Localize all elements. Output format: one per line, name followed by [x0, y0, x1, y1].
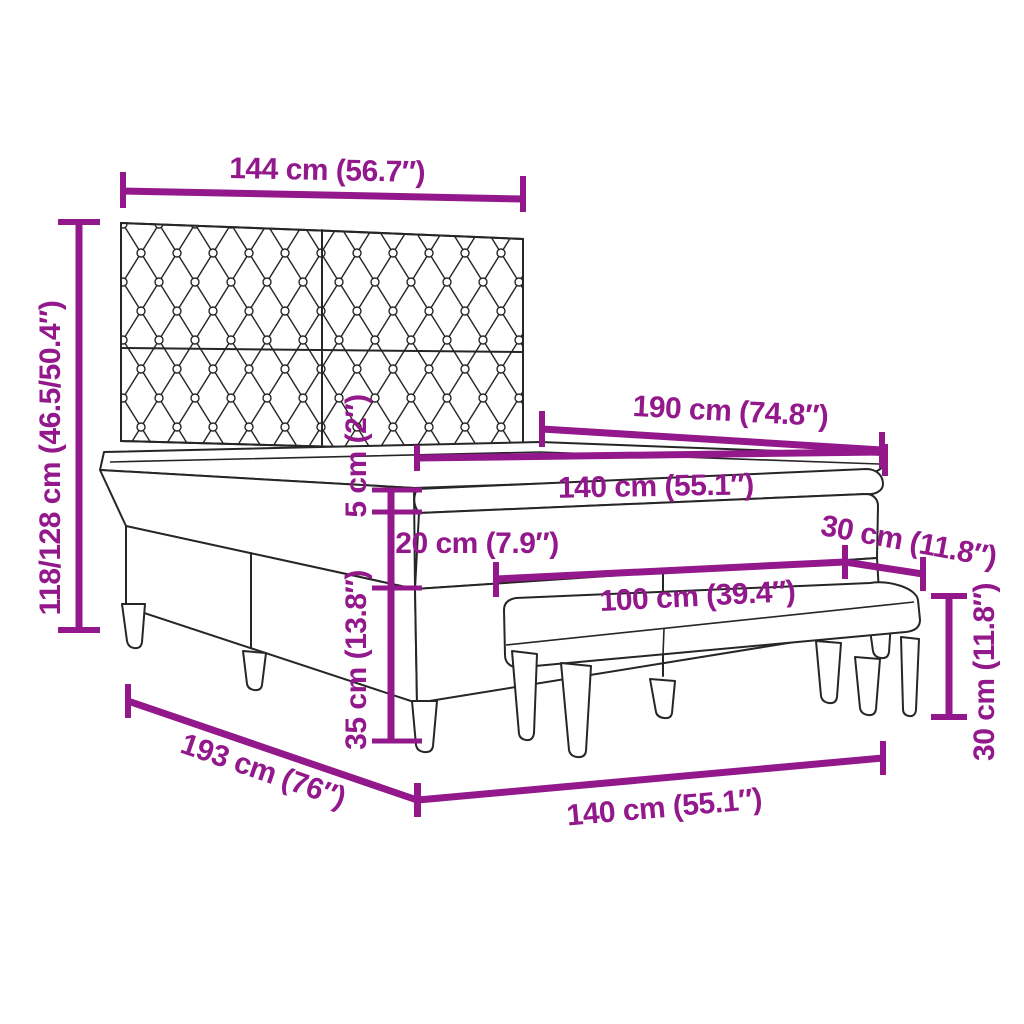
dim-bed-width: 140 cm (55.1″) — [418, 741, 883, 833]
dimension-diagram: 144 cm (56.7″) 118/128 cm (46.5/50.4″) 1… — [0, 0, 1024, 1024]
dim-label-bed-width: 140 cm (55.1″) — [565, 783, 763, 833]
bench-back-right-leg — [901, 637, 919, 716]
dim-frame-length: 193 cm (76″) — [128, 684, 417, 817]
dim-label-bench-height: 30 cm (11.8″) — [968, 583, 1001, 761]
dim-label-mattress-height: 20 cm (7.9″) — [395, 527, 558, 560]
bed-leg — [412, 701, 437, 752]
dim-total-height: 118/128 cm (46.5/50.4″) — [34, 222, 100, 630]
dim-label-headboard-width: 144 cm (56.7″) — [229, 152, 425, 189]
bench-leg — [816, 641, 841, 703]
bench-front-seam — [663, 629, 664, 655]
bench-leg — [512, 651, 537, 740]
bed-leg — [122, 604, 145, 648]
bench-leg — [855, 657, 880, 715]
dim-label-bed-length: 190 cm (74.8″) — [632, 390, 829, 433]
dim-label-total-height: 118/128 cm (46.5/50.4″) — [34, 301, 67, 616]
bench-back-leg — [650, 679, 675, 718]
dim-bench-height: 30 cm (11.8″) — [931, 583, 1001, 761]
bench-leg — [561, 663, 591, 757]
dim-headboard-width: 144 cm (56.7″) — [123, 152, 523, 212]
bed-leg — [243, 651, 266, 690]
dim-label-base-height: 35 cm (13.8″) — [340, 570, 373, 750]
dim-label-mattress-width: 140 cm (55.1″) — [558, 468, 754, 504]
bed-drawing — [100, 223, 891, 752]
diagram-canvas: 144 cm (56.7″) 118/128 cm (46.5/50.4″) 1… — [0, 0, 1024, 1024]
dim-label-topper-height: 5 cm (2″) — [340, 394, 373, 517]
